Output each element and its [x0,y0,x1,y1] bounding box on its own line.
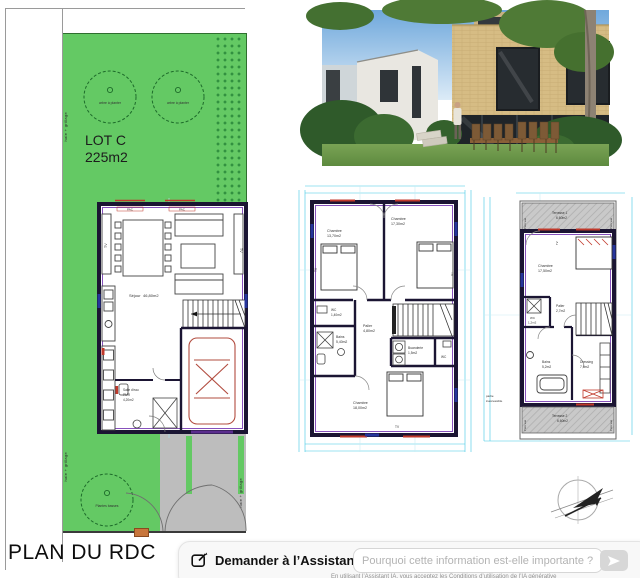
terrace1-label: Terrasse 1 [552,211,568,215]
stairs-floor1 [392,304,454,336]
dressing-area: 7,6m2 [580,365,589,369]
kitchen [102,286,115,430]
terrace1-area: 6,60m2 [556,216,567,220]
floor2-plan: Terrasse 1 6,60m2 Pare vue Pare vue [480,185,640,445]
ai-disclaimer: En utilisant l’Assistant IA, vous accept… [331,574,556,578]
tv-label-right: TV [239,248,243,253]
send-icon [607,555,621,567]
wc-f2-area: 1,2m2 [528,321,537,325]
dressing-label: Dressing [580,360,593,364]
dining-table [115,220,171,276]
salle-eau-sub: PMR [123,393,131,397]
chambre3-area: 18,00m2 [353,406,367,410]
chambre3-label: Chambre [353,401,368,405]
dressing-closet [600,343,610,393]
inaccessible-note-2: inaccessible [486,399,503,403]
bed-chambre1 [321,244,357,290]
tv-label-left: TV [104,243,108,248]
terrace2-area: 6,60m2 [557,419,568,423]
ai-assistant-bar: Demander à l’Assistant IA En utilisant l… [178,541,640,578]
stairs-rdc [183,300,245,328]
buanderie-label: Buanderie [408,346,423,350]
bains-area: 5,40m2 [336,340,347,344]
bed-chambre2 [417,242,453,288]
page-title: PLAN DU RDC [8,541,156,565]
rdc-floor-plan: PAC PAC TV TV Séjour 46,80m2 [95,198,250,438]
laundry-machines [393,341,405,365]
pac-label-left: PAC [127,207,134,211]
house-photo [322,10,609,166]
tree-to-plant-2 [152,71,204,123]
wc-floor1 [317,306,327,313]
salle-eau-red-mark [116,386,119,394]
bains-label: Bains [336,335,345,339]
pare-vue-1: Pare vue [523,217,527,229]
tree1-label: arbre à planter [99,101,122,105]
stairs-floor2 [576,303,612,335]
washbasin [133,420,141,428]
sejour-area: 46,80m2 [143,293,159,298]
palier-area: 4,80m2 [363,329,375,333]
pare-vue-2: Pare vue [609,217,613,229]
plan-document-page: LOT C 225m2 haie + grillage haie + grill… [0,0,640,578]
wc-floor2-fixtures [527,299,541,313]
boundary-line-left [5,8,6,570]
palier-f2-label: Palier [556,304,565,308]
north-arrow-symbol [545,468,615,538]
pac-label-right: PAC [179,207,186,211]
wc2-label: WC [441,355,447,359]
chambre1-area: 13,70m2 [327,234,341,238]
palier-f2-area: 2,7m2 [556,309,565,313]
terrace2-label: Terrasse 2 [552,414,568,418]
tree-to-plant-1 [84,71,136,123]
bed-floor2 [576,237,612,269]
chambre-f2-label: Chambre [538,264,553,268]
inaccessible-note-1: partie [486,394,494,398]
kitchen-appliance-mark [102,348,105,355]
terrace2 [522,407,614,433]
tree2-label: arbre à planter [167,101,190,105]
ai-question-input[interactable] [353,548,603,573]
bains-f2-area: 5,2m2 [542,365,551,369]
salle-eau-label: Salle d'eau [123,388,139,392]
chambre2-label: Chambre [391,217,406,221]
tv-f2-label: TV [555,241,559,245]
ai-send-button[interactable] [600,550,628,571]
wc2-basin [443,341,451,347]
ai-assistant-icon [191,552,208,569]
wc-f2-label: WC [530,316,536,320]
sejour-label: Séjour [129,293,141,298]
chambre2-area: 17,30m2 [391,222,405,226]
pare-vue-3: Pare vue [523,419,527,431]
gate-arcs [126,485,246,531]
shower [153,398,177,428]
boundary-line-top [5,8,245,9]
tv-unit-right [234,214,243,274]
pare-vue-4: Pare vue [609,419,613,431]
buanderie-area: 1,5m2 [408,351,417,355]
low-plants-circle [81,474,133,526]
bains-f2-label: Bains [542,360,551,364]
bed-chambre3 [387,372,423,416]
wc-label: WC [331,308,337,312]
wc-area: 1,40m2 [331,313,342,317]
chambre-f2-area: 17,50m2 [538,269,552,273]
terrace1 [522,203,614,231]
palier-label: Palier [363,324,373,328]
ai-assistant-label: Demander à l’Assistant IA [215,553,375,568]
floor1-plan: Chambre 13,70m2 Chambre 17,30m2 Palier 4… [295,180,480,465]
low-plants-label: Plantes basses [96,504,119,508]
chambre1-label: Chambre [327,229,342,233]
salle-eau-area: 4,20m2 [123,398,134,402]
